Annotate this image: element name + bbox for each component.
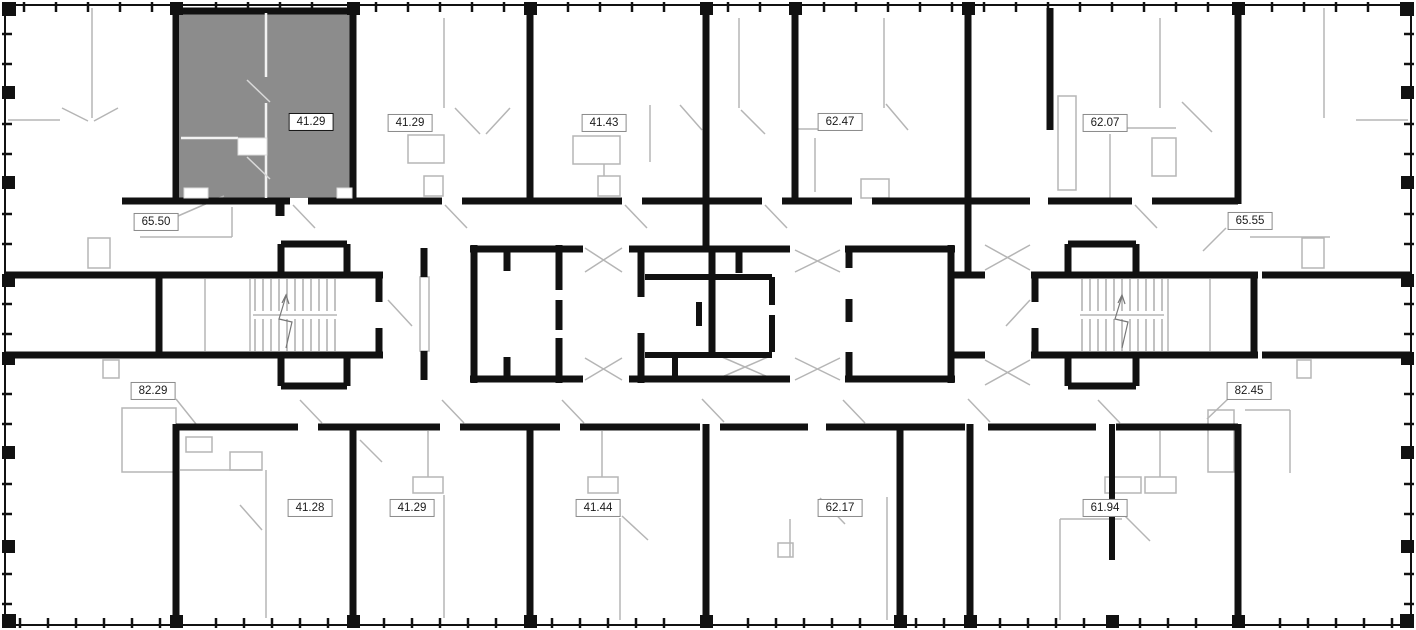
area-label-top-3[interactable]: 41.43 xyxy=(582,114,627,132)
area-labels: 41.29 41.29 41.43 62.47 62.07 65.50 65.5… xyxy=(0,0,1416,630)
area-label-top-5[interactable]: 62.07 xyxy=(1083,114,1128,132)
area-label-top-4[interactable]: 62.47 xyxy=(818,113,863,131)
area-label-right-upper[interactable]: 65.55 xyxy=(1228,212,1273,230)
area-label-left-upper[interactable]: 65.50 xyxy=(134,213,179,231)
area-label-bottom-4[interactable]: 62.17 xyxy=(818,499,863,517)
area-label-bottom-3[interactable]: 41.44 xyxy=(576,499,621,517)
area-label-bottom-2[interactable]: 41.29 xyxy=(390,499,435,517)
area-label-left-lower[interactable]: 82.29 xyxy=(131,382,176,400)
area-label-bottom-1[interactable]: 41.28 xyxy=(288,499,333,517)
floor-plan: 41.29 41.29 41.43 62.47 62.07 65.50 65.5… xyxy=(0,0,1416,630)
area-label-top-2[interactable]: 41.29 xyxy=(388,114,433,132)
area-label-right-lower[interactable]: 82.45 xyxy=(1227,382,1272,400)
area-label-top-1-selected[interactable]: 41.29 xyxy=(289,113,334,131)
area-label-bottom-5[interactable]: 61.94 xyxy=(1083,499,1128,517)
